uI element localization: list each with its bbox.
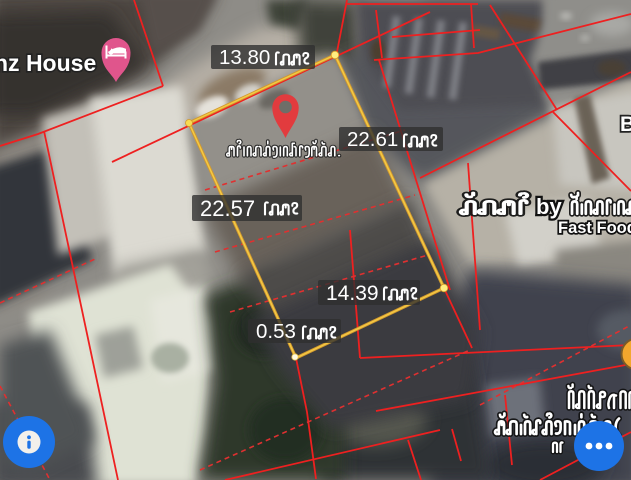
svg-text:B: B — [620, 113, 631, 136]
svg-text:13.80: 13.80 — [219, 46, 270, 69]
svg-text:22.57: 22.57 — [200, 196, 255, 221]
svg-text:0.53: 0.53 — [256, 320, 296, 343]
svg-text:14.39: 14.39 — [326, 282, 379, 305]
svg-text:by: by — [536, 194, 562, 219]
svg-text:nz House: nz House — [0, 50, 96, 76]
svg-text:Fast Food: Fast Food — [558, 219, 631, 237]
svg-text:22.61: 22.61 — [347, 128, 398, 151]
